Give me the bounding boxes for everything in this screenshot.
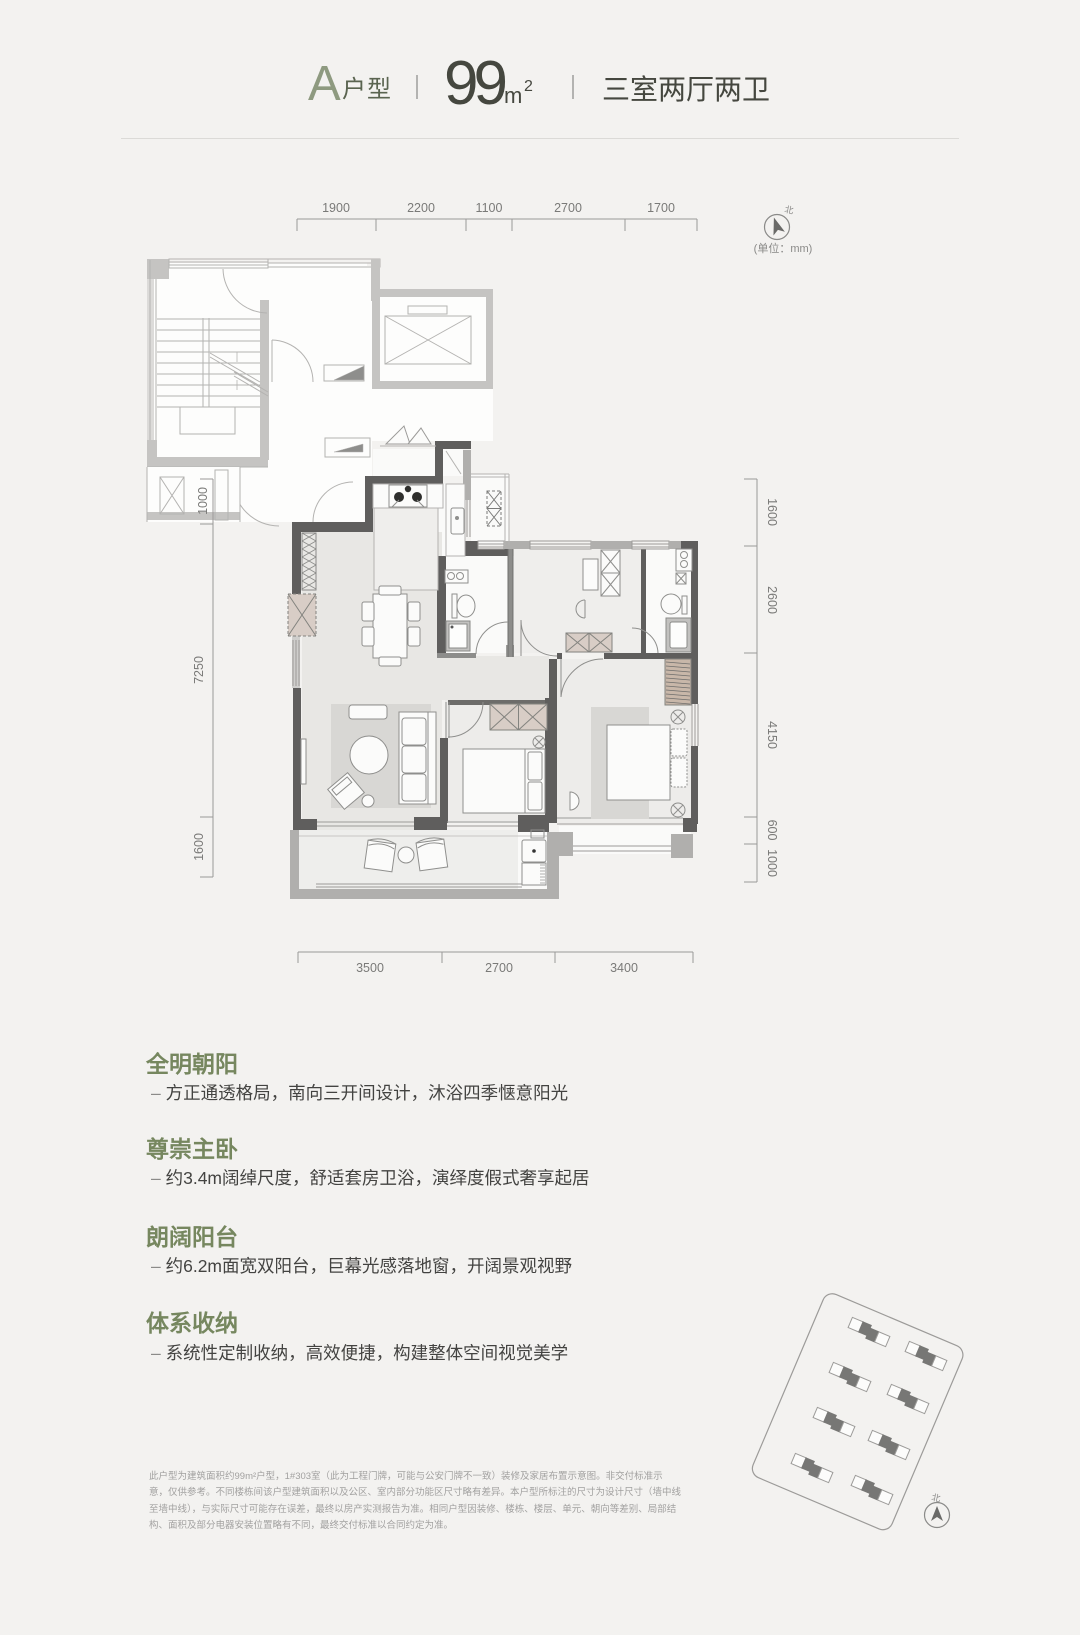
svg-text:1600: 1600 xyxy=(192,833,206,861)
svg-text:3500: 3500 xyxy=(356,961,384,975)
svg-text:(单位：mm): (单位：mm) xyxy=(754,241,813,255)
svg-text:3400: 3400 xyxy=(610,961,638,975)
svg-text:1100: 1100 xyxy=(476,201,503,215)
svg-text:2700: 2700 xyxy=(485,961,513,975)
svg-text:1700: 1700 xyxy=(647,201,675,215)
svg-text:2700: 2700 xyxy=(554,201,582,215)
svg-text:4150: 4150 xyxy=(765,721,779,749)
svg-text:2200: 2200 xyxy=(407,201,435,215)
svg-text:1000: 1000 xyxy=(765,849,779,877)
svg-text:1600: 1600 xyxy=(765,498,779,526)
svg-text:600: 600 xyxy=(765,820,779,841)
svg-text:北: 北 xyxy=(931,1492,942,1504)
svg-text:7250: 7250 xyxy=(192,656,206,684)
svg-text:1900: 1900 xyxy=(322,201,350,215)
svg-text:2600: 2600 xyxy=(765,586,779,614)
svg-text:北: 北 xyxy=(784,204,795,216)
svg-text:1000: 1000 xyxy=(196,487,210,515)
